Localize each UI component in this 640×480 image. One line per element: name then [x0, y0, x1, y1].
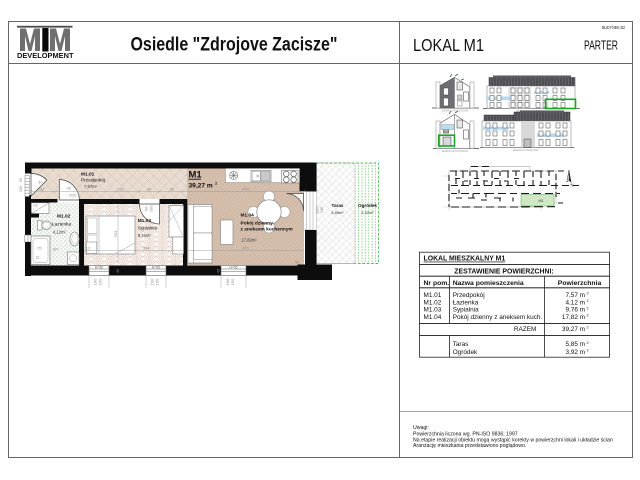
- svg-text:H=50: H=50: [229, 265, 237, 269]
- svg-text:M1.01: M1.01: [424, 292, 442, 299]
- svg-text:Łazienka: Łazienka: [52, 222, 72, 228]
- svg-text:Taras: Taras: [332, 203, 344, 208]
- svg-text:9,76 m: 9,76 m: [565, 307, 585, 314]
- svg-text:17,82m²: 17,82m²: [241, 237, 257, 242]
- svg-text:Pokój dzienny z aneksem kuch.: Pokój dzienny z aneksem kuch.: [453, 314, 543, 321]
- svg-text:M1: M1: [539, 199, 544, 203]
- svg-text:ZESTAWIENIE POWIERZCHNI:: ZESTAWIENIE POWIERZCHNI:: [454, 269, 553, 276]
- svg-text:25: 25: [37, 246, 42, 251]
- svg-text:Sypialnia: Sypialnia: [138, 226, 158, 232]
- svg-text:ELEWACJA WSCHODNIA: ELEWACJA WSCHODNIA: [441, 110, 469, 113]
- svg-text:200: 200: [37, 186, 44, 191]
- svg-text:39,27 m: 39,27 m: [562, 326, 585, 333]
- svg-text:2: 2: [587, 326, 589, 330]
- svg-text:Uwagi:: Uwagi:: [413, 425, 429, 431]
- svg-text:45: 45: [295, 260, 300, 265]
- svg-text:45: 45: [216, 268, 221, 273]
- svg-text:7-9: 7-9: [33, 204, 38, 208]
- svg-text:M1.01: M1.01: [81, 171, 95, 177]
- svg-text:M1.04: M1.04: [241, 213, 255, 219]
- svg-text:17,82 m: 17,82 m: [562, 314, 585, 321]
- svg-text:BUDYNEK B2: BUDYNEK B2: [602, 25, 625, 31]
- svg-text:187: 187: [52, 246, 59, 251]
- svg-text:7,57m²: 7,57m²: [84, 184, 98, 189]
- svg-text:5,85m²: 5,85m²: [331, 210, 344, 215]
- svg-text:Aranżację mieszkania przedstaw: Aranżację mieszkania przedstawiono poglą…: [413, 443, 526, 449]
- svg-text:Sypialnia: Sypialnia: [453, 307, 479, 314]
- svg-text:3,92m²: 3,92m²: [361, 210, 374, 215]
- svg-text:340: 340: [319, 206, 324, 213]
- svg-text:Nazwa pomieszczenia: Nazwa pomieszczenia: [453, 280, 524, 287]
- svg-text:2: 2: [587, 314, 589, 318]
- svg-text:Przedpokój: Przedpokój: [81, 178, 105, 184]
- svg-text:M1.02: M1.02: [57, 214, 71, 220]
- svg-text:M1.04: M1.04: [424, 314, 442, 321]
- svg-text:253: 253: [113, 230, 118, 237]
- svg-text:2: 2: [587, 349, 589, 353]
- svg-text:90: 90: [38, 180, 43, 185]
- svg-text:DEVELOPMENT: DEVELOPMENT: [17, 51, 74, 60]
- svg-text:Osiedle "Zdrojove Zacisze": Osiedle "Zdrojove Zacisze": [131, 35, 338, 56]
- svg-text:5,85 m: 5,85 m: [565, 341, 585, 348]
- svg-text:45: 45: [115, 268, 120, 273]
- svg-text:470: 470: [242, 245, 249, 250]
- svg-text:96: 96: [67, 186, 72, 191]
- svg-text:Pokój dzienny: Pokój dzienny: [241, 221, 274, 227]
- svg-text:200: 200: [149, 205, 154, 212]
- svg-text:Przedpokój: Przedpokój: [453, 292, 485, 299]
- svg-text:150: 150: [98, 278, 103, 285]
- svg-text:12: 12: [86, 245, 91, 250]
- svg-text:7,57 m: 7,57 m: [565, 292, 585, 299]
- svg-text:M1.02: M1.02: [424, 299, 442, 306]
- svg-text:LOKAL M1: LOKAL M1: [413, 35, 484, 55]
- svg-text:RAZEM: RAZEM: [514, 326, 536, 333]
- svg-text:M1.03: M1.03: [138, 218, 152, 224]
- svg-text:Ogródek: Ogródek: [358, 203, 377, 208]
- svg-text:Ogródek: Ogródek: [453, 349, 478, 356]
- svg-text:2: 2: [587, 292, 589, 296]
- svg-text:364: 364: [143, 245, 150, 250]
- svg-text:200: 200: [18, 185, 23, 192]
- svg-text:ELEWACJA ZACHODNIA: ELEWACJA ZACHODNIA: [442, 150, 469, 153]
- svg-text:Nr pom.: Nr pom.: [424, 280, 450, 287]
- svg-text:2: 2: [587, 341, 589, 345]
- svg-text:3,92 m: 3,92 m: [565, 349, 585, 356]
- svg-text:z aneksem kuchennym: z aneksem kuchennym: [241, 227, 293, 233]
- svg-text:232: 232: [117, 186, 124, 191]
- svg-text:M1.03: M1.03: [424, 307, 442, 314]
- svg-text:Powierzchnia: Powierzchnia: [558, 280, 602, 287]
- svg-text:H=50: H=50: [152, 265, 160, 269]
- svg-text:90: 90: [18, 177, 23, 182]
- svg-text:PARTER: PARTER: [584, 39, 618, 53]
- svg-text:150: 150: [155, 278, 160, 285]
- svg-text:205: 205: [69, 193, 76, 198]
- svg-text:4,12 m: 4,12 m: [565, 299, 585, 306]
- svg-text:2: 2: [587, 306, 589, 310]
- svg-text:150: 150: [230, 278, 235, 285]
- svg-text:LOKAL MIESZKALNY M1: LOKAL MIESZKALNY M1: [424, 256, 506, 263]
- svg-text:Łazienka: Łazienka: [453, 299, 479, 306]
- svg-text:90: 90: [147, 186, 152, 191]
- svg-text:39,27 m: 39,27 m: [189, 182, 213, 189]
- svg-text:2: 2: [587, 299, 589, 303]
- svg-text:ELEWACJA PÓŁNOCNA: ELEWACJA PÓŁNOCNA: [513, 149, 539, 152]
- svg-text:H=50: H=50: [95, 265, 103, 269]
- svg-text:96: 96: [170, 186, 175, 191]
- svg-text:Taras: Taras: [453, 341, 469, 348]
- svg-text:470: 470: [242, 186, 249, 191]
- svg-text:4,12m²: 4,12m²: [53, 229, 67, 234]
- svg-text:9,76m²: 9,76m²: [138, 233, 152, 238]
